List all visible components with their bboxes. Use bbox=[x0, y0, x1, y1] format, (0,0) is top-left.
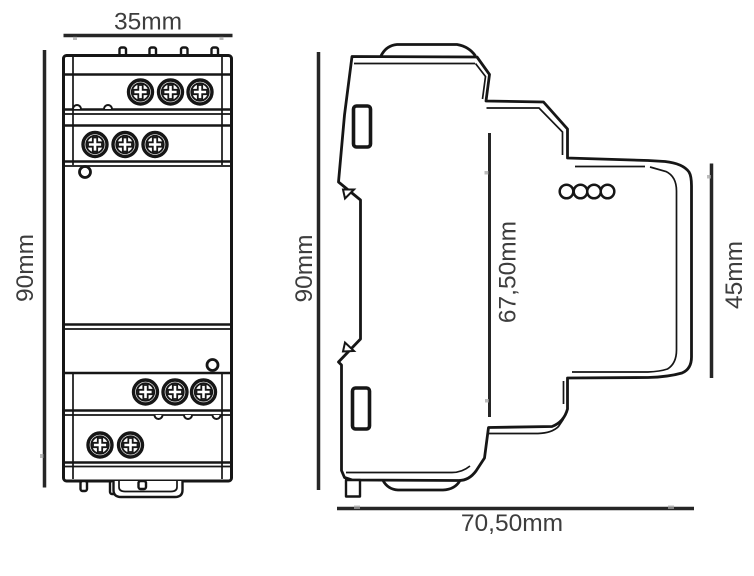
side-bottom-hump bbox=[383, 481, 460, 491]
front-view: 35mm 90mm bbox=[12, 9, 233, 498]
terminal-screw bbox=[143, 133, 167, 157]
terminal-screw bbox=[159, 80, 183, 104]
terminal-screw bbox=[113, 133, 137, 157]
led-indicator bbox=[587, 185, 601, 199]
terminal-screw bbox=[188, 80, 212, 104]
dimension-label-inner-height: 67,50mm bbox=[495, 221, 522, 323]
led-indicator bbox=[80, 167, 91, 178]
dimension-label-front-section: 45mm bbox=[721, 241, 748, 309]
din-clip-handle bbox=[114, 481, 183, 497]
front-width-dimension: 35mm bbox=[64, 9, 233, 41]
led-indicator bbox=[560, 185, 574, 199]
side-depth-dimension: 70,50mm bbox=[337, 506, 694, 538]
dimension-label-depth: 70,50mm bbox=[461, 510, 563, 537]
front-housing-outline bbox=[64, 56, 232, 482]
terminal-screw bbox=[134, 380, 158, 404]
led-indicator bbox=[574, 185, 588, 199]
side-front-height-dimension: 45mm bbox=[707, 164, 748, 379]
side-view: 90mm 67,50mm 45mm 70,50mm bbox=[291, 45, 748, 538]
side-release-tab bbox=[346, 480, 360, 497]
side-slot-bottom bbox=[353, 388, 370, 429]
terminal-screw bbox=[119, 433, 143, 457]
side-slot-top bbox=[354, 106, 371, 147]
terminal-screw bbox=[163, 380, 187, 404]
dimension-label-side-height: 90mm bbox=[291, 234, 318, 302]
dimension-drawing-svg: 35mm 90mm bbox=[0, 0, 754, 576]
front-bottom-clip bbox=[81, 481, 183, 497]
dimension-label-front-height: 90mm bbox=[12, 234, 39, 302]
side-height-dimension: 90mm bbox=[291, 52, 319, 490]
front-height-dimension: 90mm bbox=[12, 50, 45, 488]
led-indicator bbox=[207, 360, 218, 371]
dimension-label-front-width: 35mm bbox=[114, 9, 182, 36]
din-module-dimension-drawing: 35mm 90mm bbox=[0, 0, 754, 576]
terminal-screw bbox=[83, 133, 107, 157]
led-indicator bbox=[601, 185, 615, 199]
terminal-screw bbox=[88, 433, 112, 457]
terminal-screw bbox=[129, 80, 153, 104]
side-top-hump bbox=[381, 45, 476, 57]
terminal-screw bbox=[192, 380, 216, 404]
